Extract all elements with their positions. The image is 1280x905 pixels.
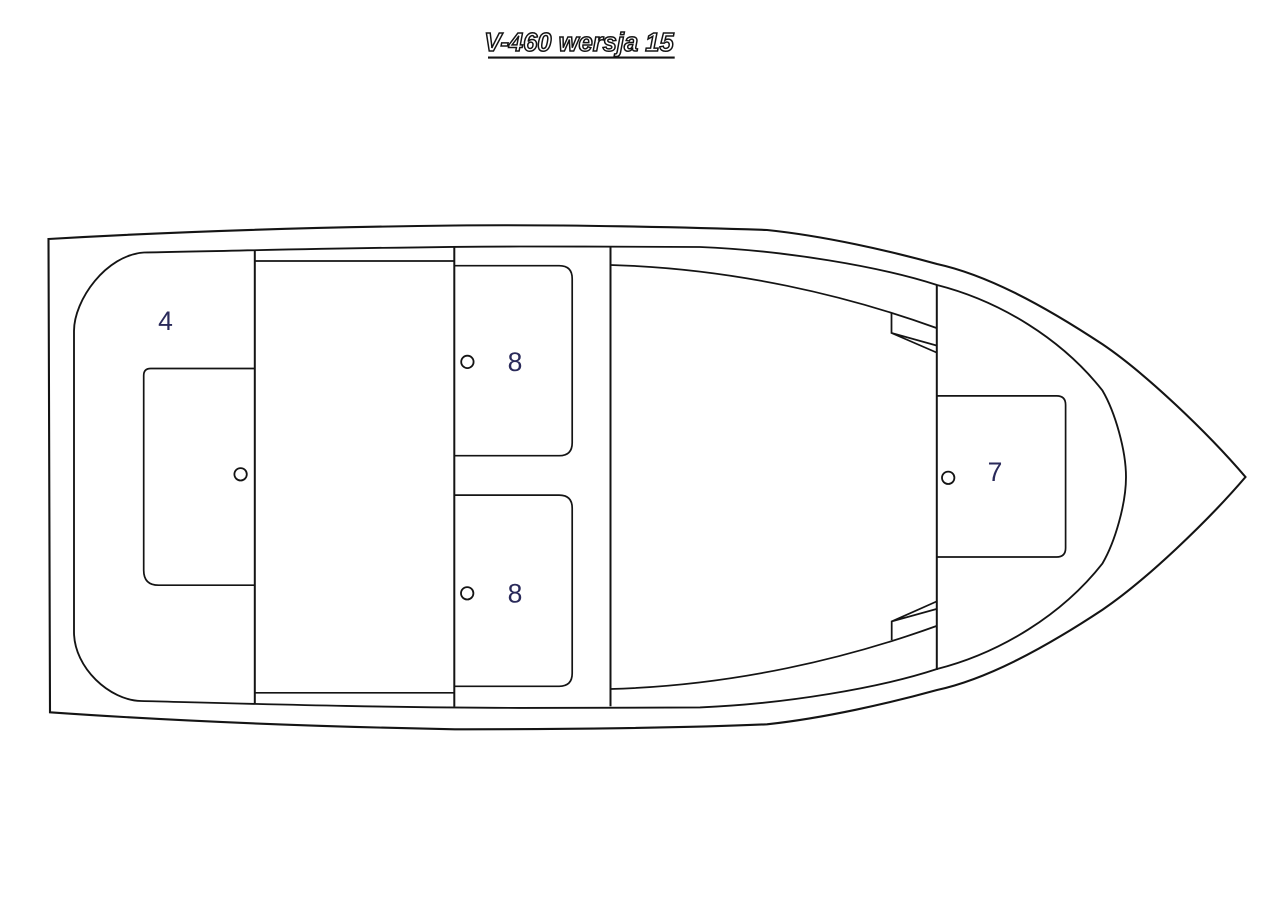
svg-text:8: 8	[508, 347, 523, 377]
svg-text:V-460 wersja 15: V-460 wersja 15	[484, 29, 674, 57]
svg-text:8: 8	[508, 579, 523, 609]
svg-text:7: 7	[988, 457, 1003, 487]
svg-text:4: 4	[158, 306, 173, 336]
